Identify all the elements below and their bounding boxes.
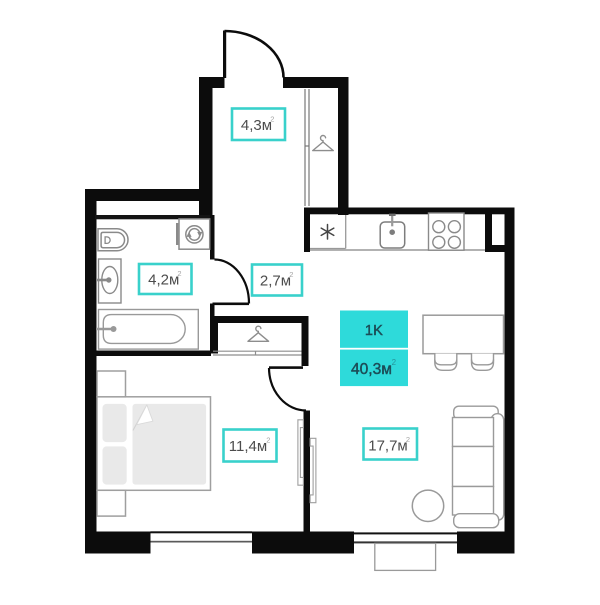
svg-text:2,7м: 2,7м [260,273,291,290]
svg-text:2: 2 [406,435,410,444]
svg-text:2: 2 [392,358,397,367]
svg-text:2: 2 [270,115,274,124]
svg-text:2: 2 [289,270,293,279]
svg-text:1K: 1K [365,323,383,339]
svg-text:11,4м: 11,4м [229,438,267,455]
svg-text:4,2м: 4,2м [148,272,179,289]
svg-text:2: 2 [177,269,181,278]
svg-text:4,3м: 4,3м [241,117,272,134]
svg-text:40,3м: 40,3м [351,361,392,378]
svg-text:2: 2 [266,436,270,445]
svg-text:17,7м: 17,7м [368,438,408,455]
